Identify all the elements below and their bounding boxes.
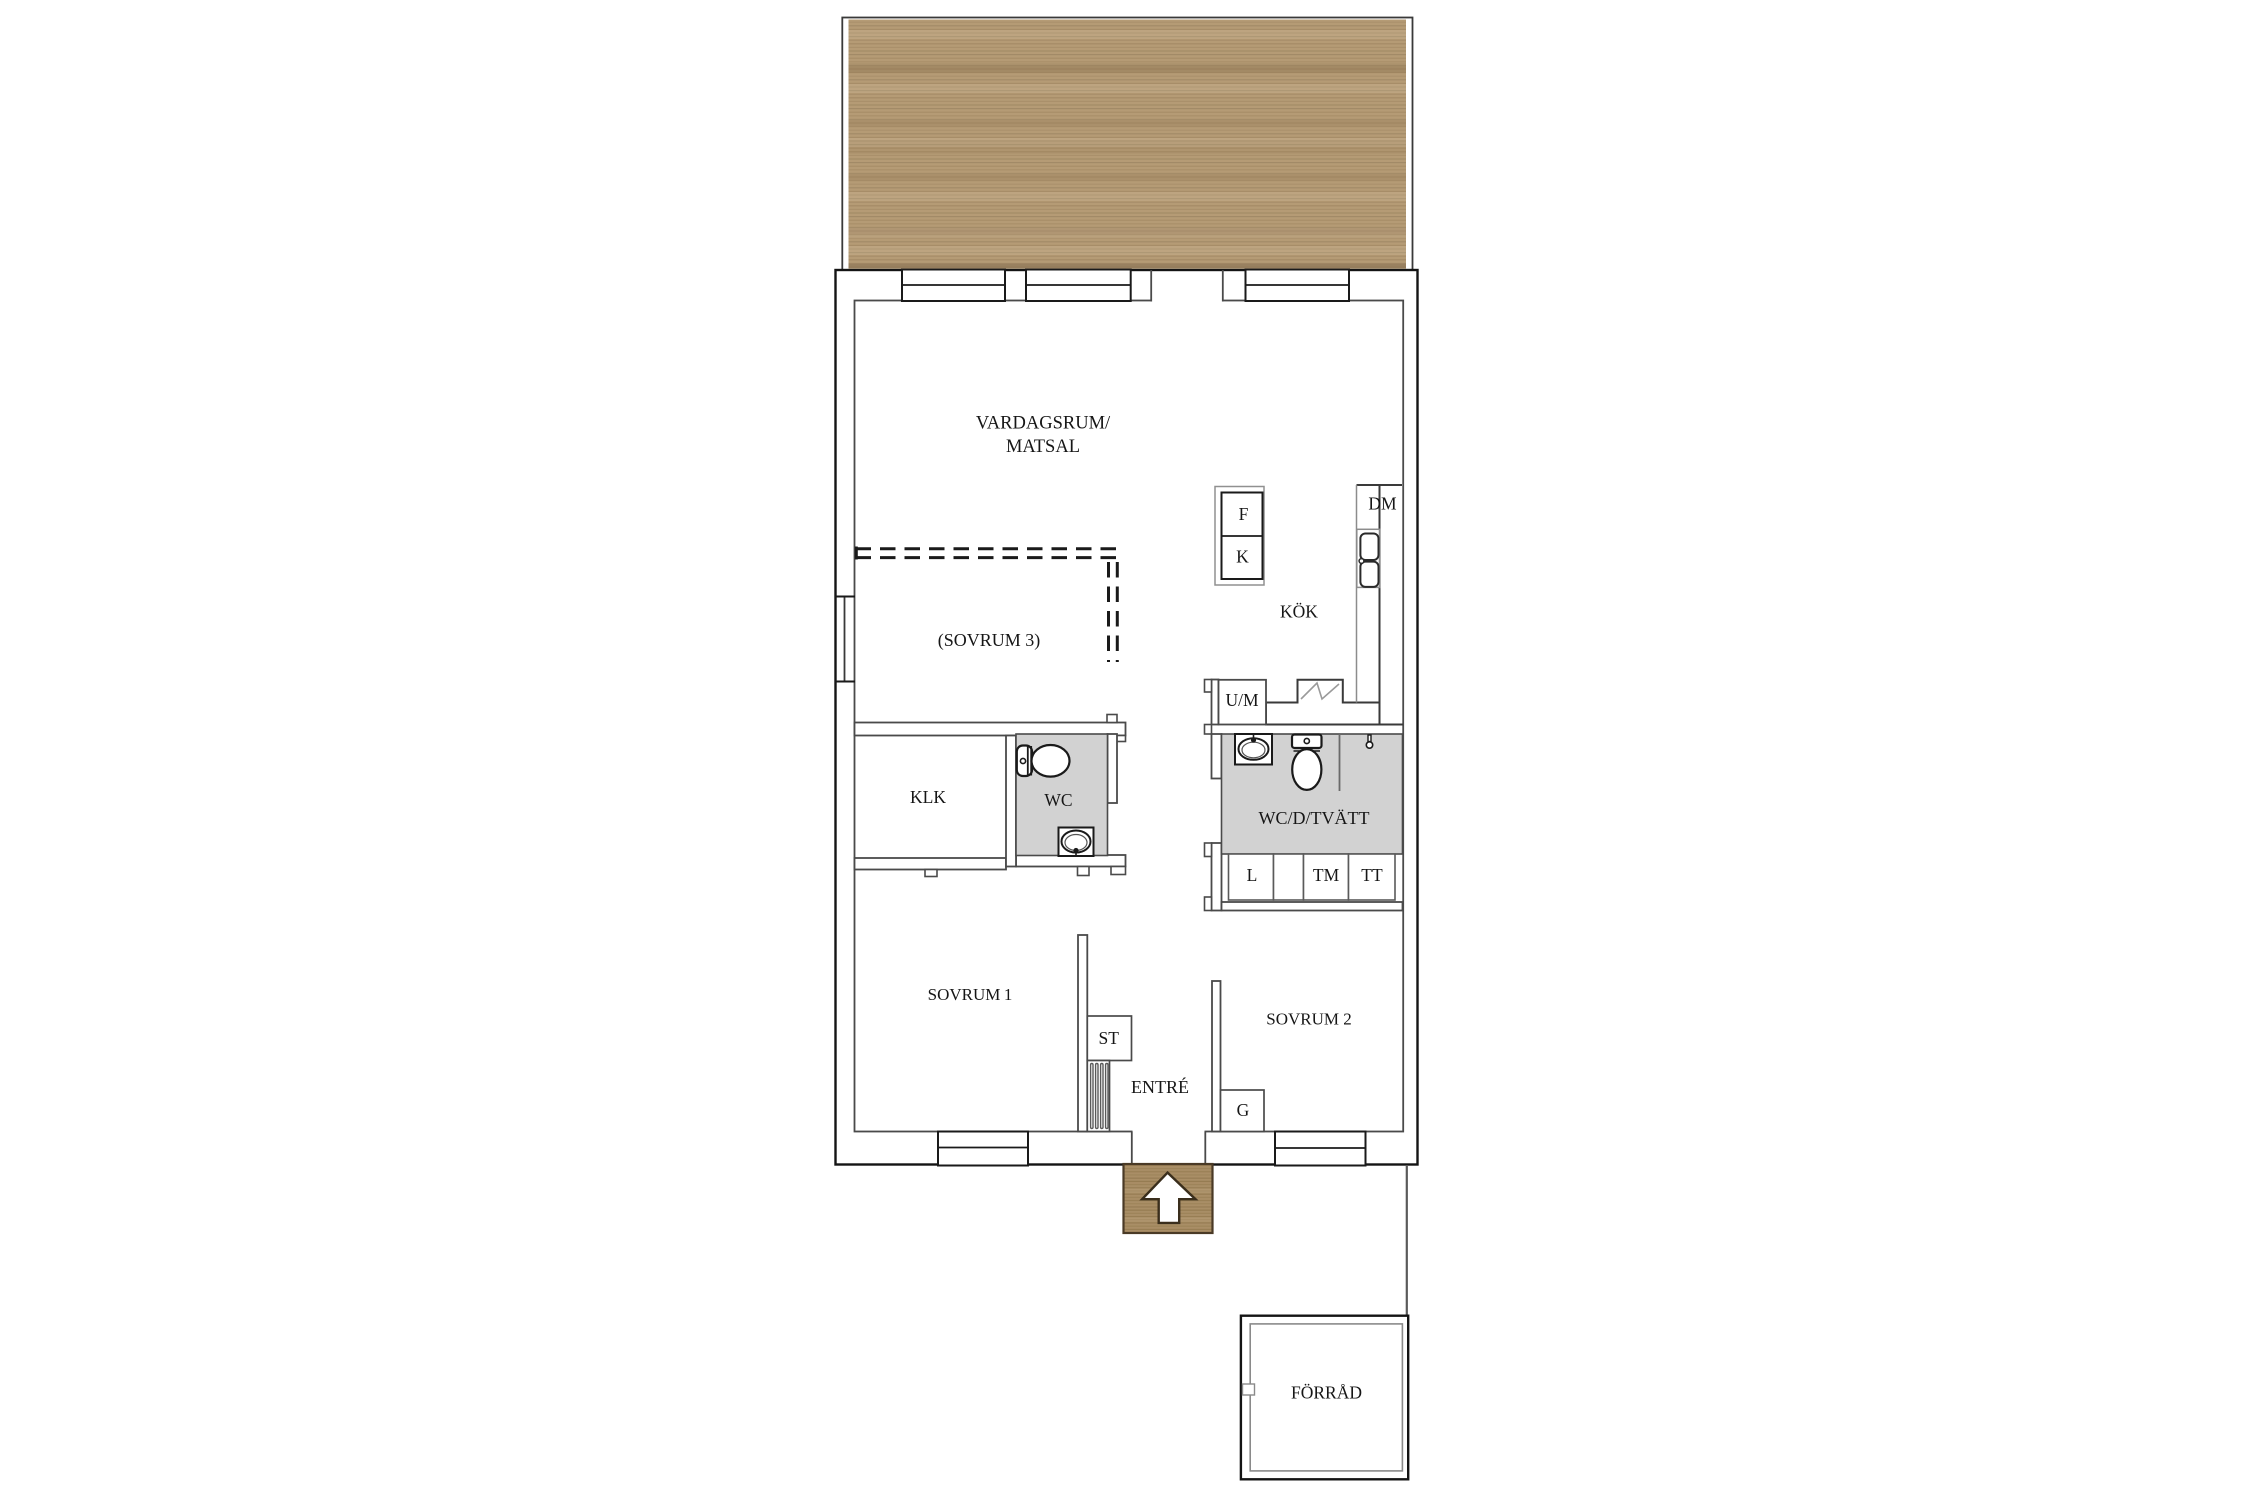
svg-text:ST: ST — [1098, 1028, 1119, 1048]
svg-text:FÖRRÅD: FÖRRÅD — [1291, 1383, 1362, 1403]
svg-text:F: F — [1239, 504, 1249, 524]
svg-text:L: L — [1247, 865, 1258, 885]
svg-text:DM: DM — [1368, 494, 1397, 514]
svg-text:VARDAGSRUM/: VARDAGSRUM/ — [976, 414, 1111, 434]
svg-text:WC: WC — [1044, 790, 1072, 810]
svg-text:KLK: KLK — [910, 787, 946, 807]
svg-text:TM: TM — [1313, 865, 1340, 885]
svg-text:(SOVRUM 3): (SOVRUM 3) — [938, 630, 1041, 651]
svg-text:SOVRUM 2: SOVRUM 2 — [1266, 1010, 1352, 1029]
svg-text:KÖK: KÖK — [1280, 602, 1318, 622]
svg-text:WC/D/TVÄTT: WC/D/TVÄTT — [1259, 808, 1370, 828]
svg-text:ENTRÉ: ENTRÉ — [1131, 1076, 1189, 1097]
svg-text:MATSAL: MATSAL — [1006, 437, 1080, 457]
svg-text:SOVRUM 1: SOVRUM 1 — [928, 985, 1013, 1004]
svg-text:K: K — [1236, 547, 1249, 567]
svg-text:U/M: U/M — [1225, 690, 1259, 710]
svg-text:TT: TT — [1361, 865, 1383, 885]
svg-text:G: G — [1237, 1100, 1250, 1120]
